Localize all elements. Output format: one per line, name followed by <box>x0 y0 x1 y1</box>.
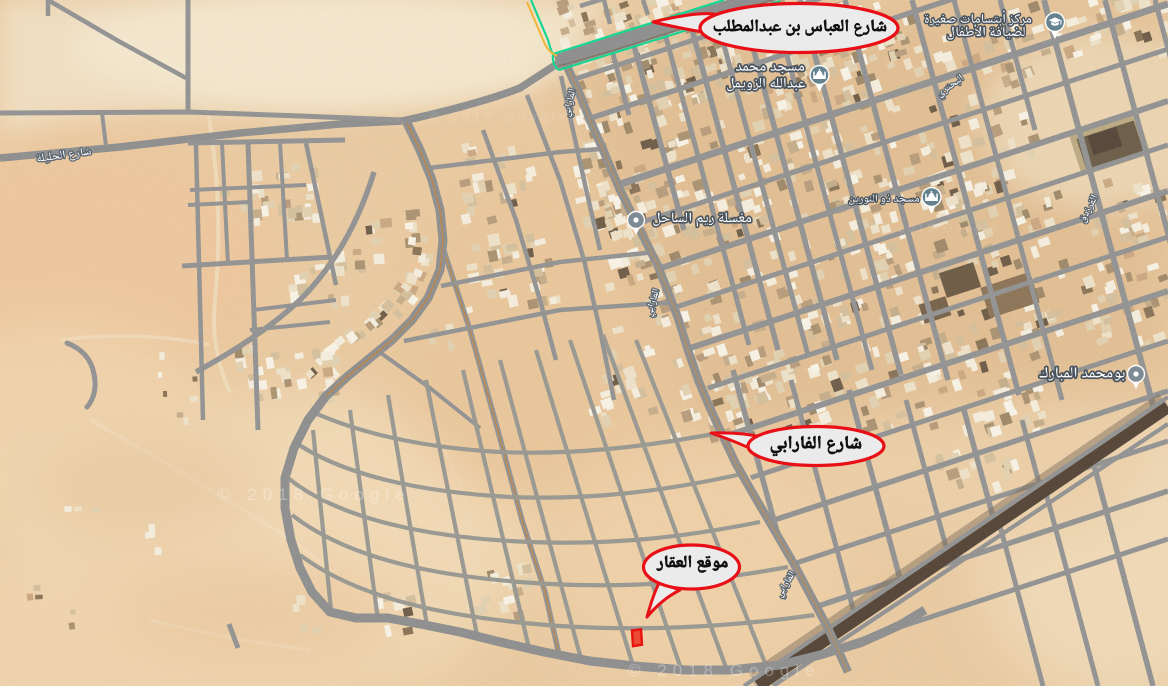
svg-text:© 2018 Google: © 2018 Google <box>218 485 411 504</box>
svg-text:© 2018 Google: © 2018 Google <box>628 661 821 680</box>
svg-text:© 2018 Google: © 2018 Google <box>880 221 1000 235</box>
svg-text:© 2018 Google: © 2018 Google <box>430 109 570 124</box>
